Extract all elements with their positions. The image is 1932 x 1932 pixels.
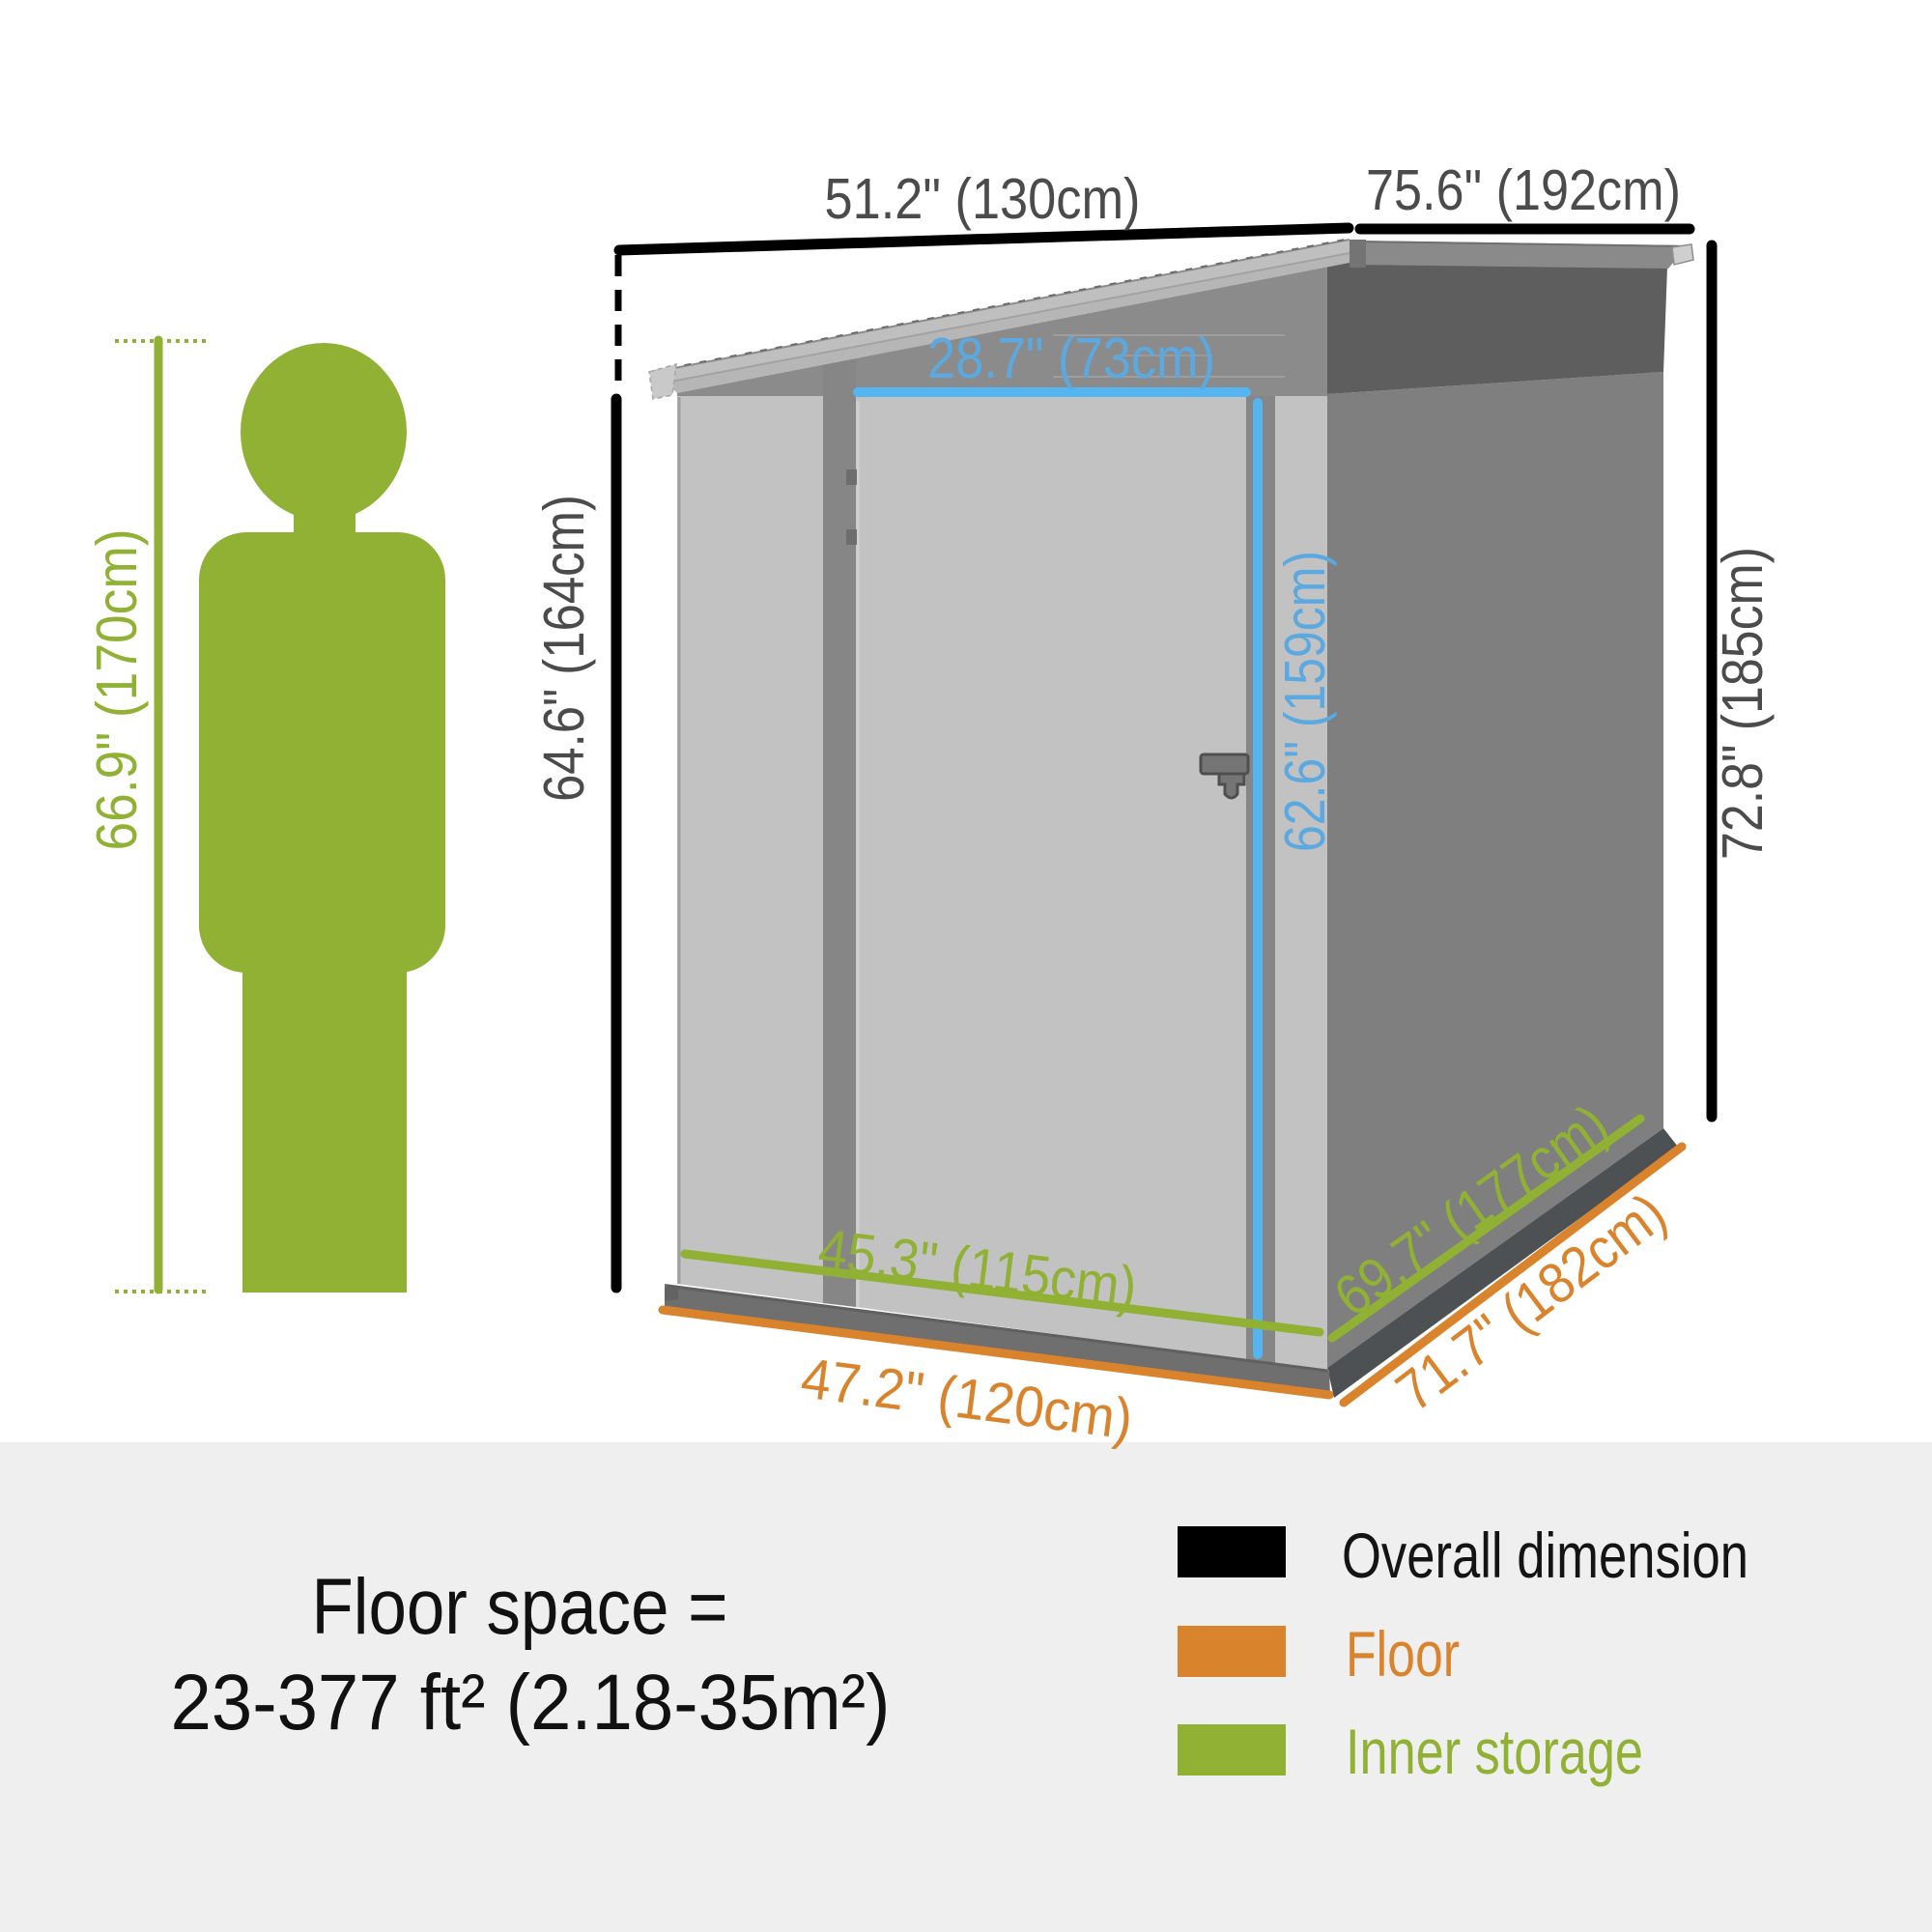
svg-text:23-377 ft² (2.18-35m²): 23-377 ft² (2.18-35m²) — [171, 1659, 891, 1747]
svg-text:62.6" (159cm): 62.6" (159cm) — [1273, 551, 1337, 852]
svg-text:Inner storage: Inner storage — [1346, 1716, 1643, 1787]
svg-text:72.8" (185cm): 72.8" (185cm) — [1711, 547, 1775, 860]
svg-text:51.2" (130cm): 51.2" (130cm) — [825, 167, 1141, 231]
svg-text:75.6" (192cm): 75.6" (192cm) — [1366, 158, 1681, 222]
svg-text:Floor: Floor — [1346, 1618, 1460, 1690]
svg-text:Overall dimension: Overall dimension — [1342, 1520, 1748, 1591]
svg-text:28.7" (73cm): 28.7" (73cm) — [927, 327, 1215, 390]
svg-text:Floor space =: Floor space = — [312, 1563, 728, 1651]
svg-text:66.9" (170cm): 66.9" (170cm) — [85, 529, 149, 851]
svg-text:64.6" (164cm): 64.6" (164cm) — [532, 495, 596, 802]
